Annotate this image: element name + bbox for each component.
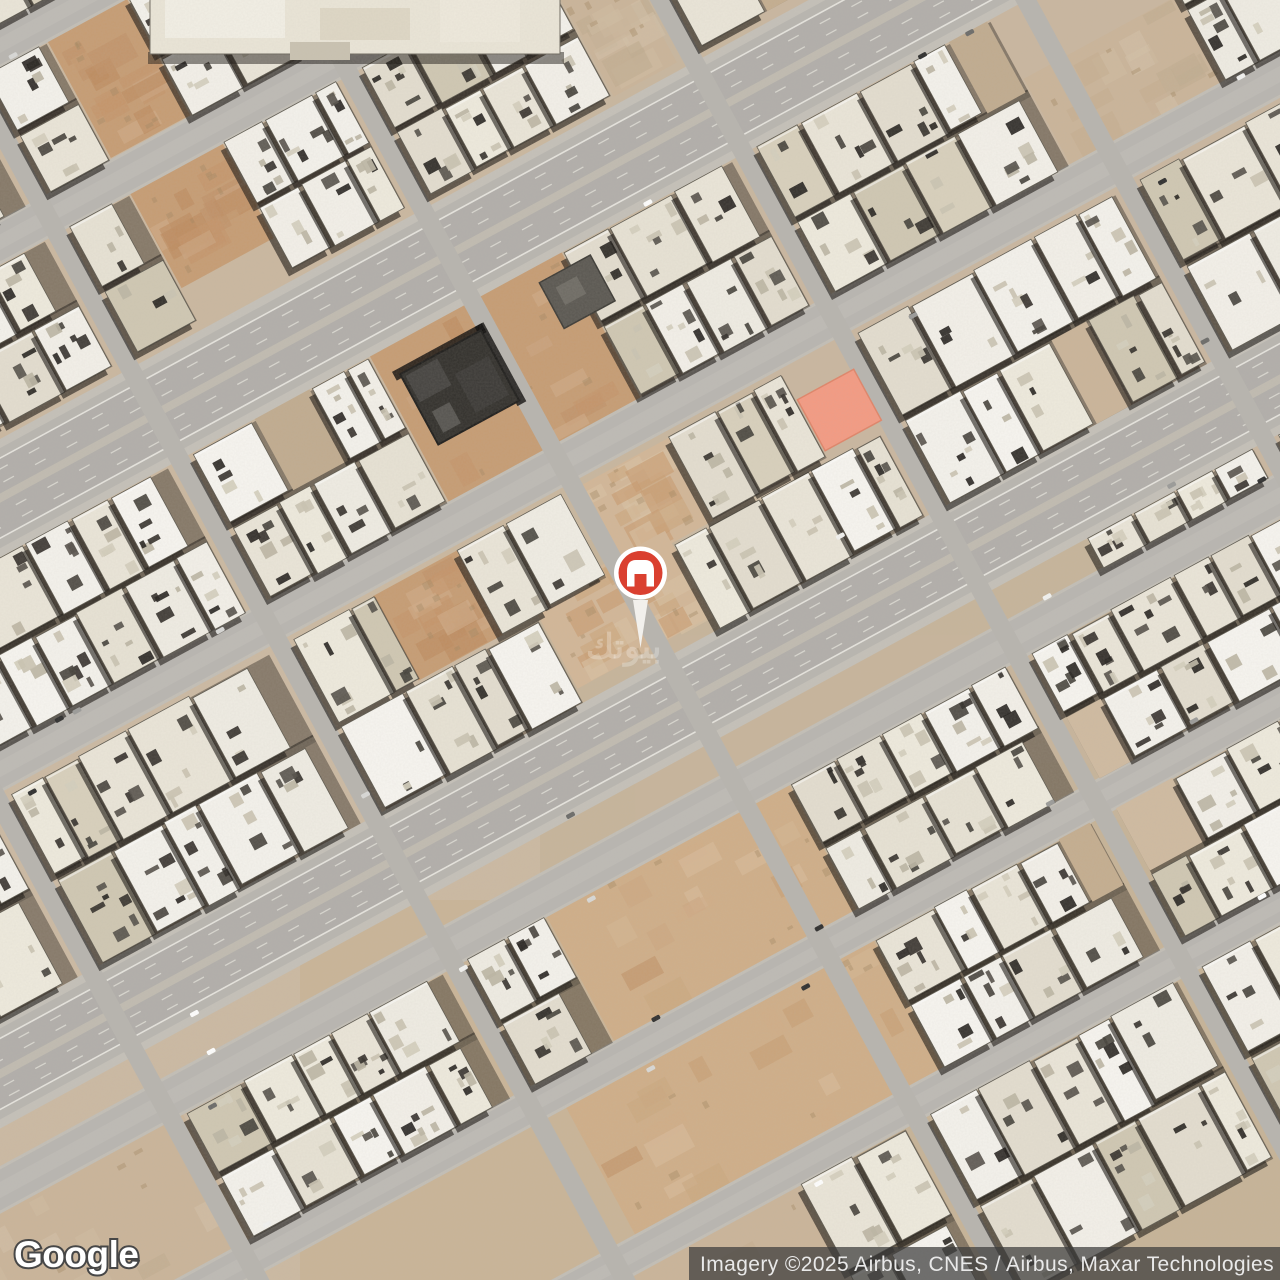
svg-text:Google: Google <box>14 1234 138 1275</box>
svg-text:Imagery ©2025 Airbus, CNES / A: Imagery ©2025 Airbus, CNES / Airbus, Max… <box>700 1253 1274 1276</box>
svg-text:بيوتك: بيوتك <box>586 628 661 667</box>
